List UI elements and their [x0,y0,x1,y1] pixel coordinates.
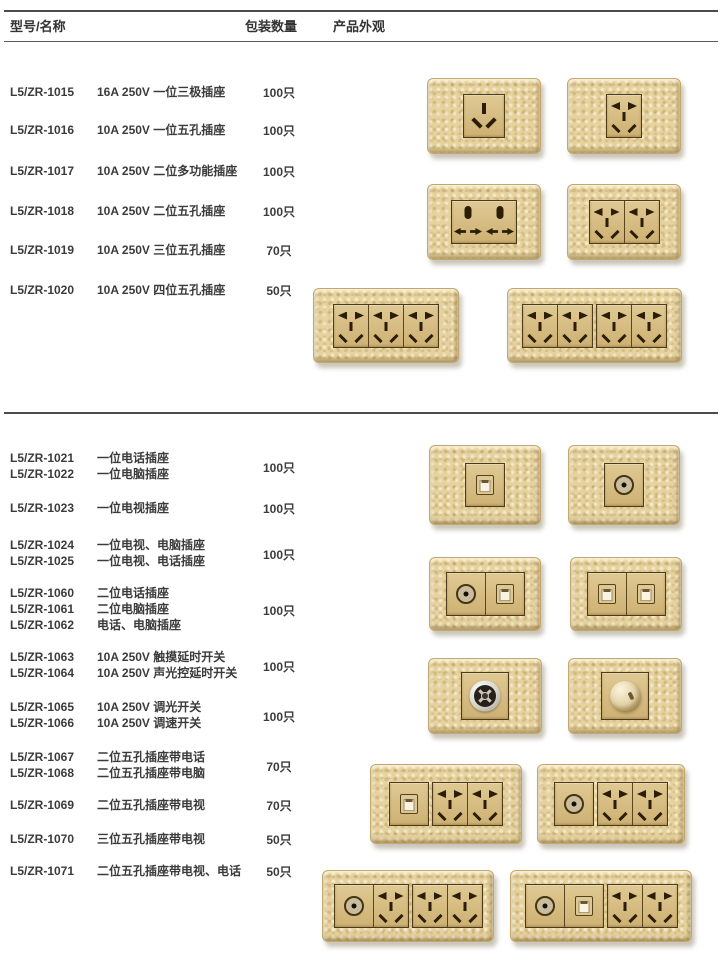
model-number: L5/ZR-1060 [10,585,95,601]
catalog-row: L5/ZR-1070三位五孔插座带电视50只 [10,831,322,848]
product-description: 一位电视插座 [97,500,272,516]
model-numbers: L5/ZR-1021L5/ZR-1022 [10,450,95,482]
socket-module-frame [412,884,483,928]
model-numbers: L5/ZR-1016 [10,122,95,138]
five-hole-socket-icon [433,783,467,825]
package-quantity: 100只 [247,649,311,683]
package-quantity: 100只 [247,537,311,571]
five-hole-socket-icon [607,95,641,137]
product-plate-1024 [429,557,541,631]
five-hole-socket-icon [413,885,447,927]
product-plate-1017 [427,184,541,260]
product-descriptions: 10A 250V 调光开关10A 250V 调速开关 [97,699,272,731]
product-plate-1023 [568,445,680,525]
model-number: L5/ZR-1071 [10,863,95,879]
model-numbers: L5/ZR-1067L5/ZR-1068 [10,749,95,781]
socket-module-frame [333,304,439,348]
model-numbers: L5/ZR-1018 [10,203,95,219]
model-number: L5/ZR-1061 [10,601,95,617]
catalog-row: L5/ZR-1067L5/ZR-1068二位五孔插座带电话二位五孔插座带电脑70… [10,749,322,783]
catalog-row: L5/ZR-1023一位电视插座100只 [10,500,322,517]
five-hole-socket-icon [608,885,642,927]
product-plate-1065 [568,658,682,734]
model-numbers: L5/ZR-1071 [10,863,95,879]
product-plate-1019 [313,288,459,363]
phone-computer-jack-icon [485,573,524,615]
model-number: L5/ZR-1025 [10,553,95,569]
five-hole-socket-icon [467,783,502,825]
product-descriptions: 10A 250V 四位五孔插座 [97,282,272,298]
model-number: L5/ZR-1016 [10,122,95,138]
phone-computer-jack-icon [626,573,665,615]
product-descriptions: 二位电话插座二位电脑插座电话、电脑插座 [97,585,272,633]
model-numbers: L5/ZR-1024L5/ZR-1025 [10,537,95,569]
model-numbers: L5/ZR-1015 [10,84,95,100]
socket-module-frame [463,94,505,138]
product-descriptions: 二位五孔插座带电话二位五孔插座带电脑 [97,749,272,781]
five-hole-socket-icon [368,305,403,347]
package-quantity: 100只 [247,122,311,139]
package-quantity: 100只 [247,163,311,180]
five-hole-socket-icon [632,783,667,825]
product-descriptions: 二位五孔插座带电视、电话 [97,863,272,879]
header-top-rule [4,10,718,12]
socket-module-frame [525,884,604,928]
model-number: L5/ZR-1065 [10,699,95,715]
socket-module-frame [607,884,678,928]
model-number: L5/ZR-1070 [10,831,95,847]
model-number: L5/ZR-1024 [10,537,95,553]
product-description: 二位五孔插座带电视、电话 [97,863,272,879]
product-plate-1016 [567,78,681,154]
product-description: 10A 250V 调光开关 [97,699,272,715]
product-description: 一位电视、电脑插座 [97,537,272,553]
product-plate-1067 [370,764,522,844]
catalog-row: L5/ZR-1063L5/ZR-106410A 250V 触摸延时开关10A 2… [10,649,322,683]
product-plate-1069 [537,764,685,844]
product-description: 10A 250V 一位五孔插座 [97,122,272,138]
model-number: L5/ZR-1020 [10,282,95,298]
model-number: L5/ZR-1018 [10,203,95,219]
model-numbers: L5/ZR-1070 [10,831,95,847]
five-hole-socket-icon [334,305,368,347]
catalog-row: L5/ZR-1060L5/ZR-1061L5/ZR-1062二位电话插座二位电脑… [10,585,322,635]
column-header-model-name: 型号/名称 [10,16,66,35]
model-number: L5/ZR-1068 [10,765,95,781]
socket-module-frame [461,672,509,720]
package-quantity: 70只 [247,797,311,814]
header-bottom-rule [4,41,718,42]
socket-module-frame [606,94,642,138]
product-description: 二位电话插座 [97,585,272,601]
product-description: 二位电脑插座 [97,601,272,617]
product-description: 10A 250V 四位五孔插座 [97,282,272,298]
catalog-row: L5/ZR-1069二位五孔插座带电视70只 [10,797,322,814]
five-hole-socket-icon [631,305,666,347]
product-descriptions: 10A 250V 二位多功能插座 [97,163,272,179]
socket-module-frame [601,672,649,720]
model-number: L5/ZR-1021 [10,450,95,466]
product-descriptions: 一位电话插座一位电脑插座 [97,450,272,482]
product-plate-1015 [427,78,541,154]
model-number: L5/ZR-1064 [10,665,95,681]
section-divider-rule [4,412,718,414]
model-number: L5/ZR-1063 [10,649,95,665]
socket-module-frame [451,200,517,244]
five-hole-socket-icon [598,783,632,825]
catalog-row: L5/ZR-101710A 250V 二位多功能插座100只 [10,163,322,180]
socket-module-frame [446,572,525,616]
package-quantity: 50只 [247,282,311,299]
product-plate-1018 [567,184,681,260]
tv-coax-socket-icon [335,885,373,927]
product-description: 电话、电脑插座 [97,617,272,633]
product-descriptions: 10A 250V 二位五孔插座 [97,203,272,219]
five-hole-socket-icon [642,885,677,927]
product-description: 一位电脑插座 [97,466,272,482]
five-hole-socket-icon [557,305,592,347]
socket-module-frame [334,884,409,928]
product-description: 二位五孔插座带电脑 [97,765,272,781]
catalog-page: 型号/名称 包装数量 产品外观 L5/ZR-101516A 250V 一位三极插… [0,0,722,967]
five-hole-socket-icon [597,305,631,347]
socket-module-frame [597,782,668,826]
product-descriptions: 10A 250V 触摸延时开关10A 250V 声光控延时开关 [97,649,272,681]
package-quantity: 50只 [247,831,311,848]
socket-module-frame [465,463,505,507]
catalog-row: L5/ZR-1065L5/ZR-106610A 250V 调光开关10A 250… [10,699,322,733]
product-plate-1060 [570,557,682,631]
column-header-quantity: 包装数量 [245,16,297,35]
model-numbers: L5/ZR-1019 [10,242,95,258]
model-number: L5/ZR-1023 [10,500,95,516]
socket-module-frame [589,200,660,244]
five-hole-socket-icon [624,201,659,243]
product-plate-1063 [428,658,542,734]
product-descriptions: 10A 250V 一位五孔插座 [97,122,272,138]
product-description: 16A 250V 一位三极插座 [97,84,272,100]
model-numbers: L5/ZR-1017 [10,163,95,179]
tv-coax-socket-icon [526,885,564,927]
catalog-row: L5/ZR-102010A 250V 四位五孔插座50只 [10,282,322,299]
tv-coax-socket-icon [555,783,593,825]
package-quantity: 100只 [247,585,311,635]
five-hole-socket-icon [447,885,482,927]
product-description: 二位五孔插座带电话 [97,749,272,765]
model-number: L5/ZR-1062 [10,617,95,633]
product-description: 10A 250V 二位多功能插座 [97,163,272,179]
product-descriptions: 一位电视插座 [97,500,272,516]
package-quantity: 70只 [247,749,311,783]
model-number: L5/ZR-1015 [10,84,95,100]
package-quantity: 100只 [247,500,311,517]
product-description: 一位电话插座 [97,450,272,466]
catalog-row: L5/ZR-101910A 250V 三位五孔插座70只 [10,242,322,259]
package-quantity: 50只 [247,863,311,880]
product-plate-1070 [322,870,494,942]
product-description: 10A 250V 二位五孔插座 [97,203,272,219]
touch-delay-switch-icon [462,673,508,719]
package-quantity: 100只 [247,699,311,733]
model-numbers: L5/ZR-1060L5/ZR-1061L5/ZR-1062 [10,585,95,633]
model-numbers: L5/ZR-1023 [10,500,95,516]
catalog-row: L5/ZR-1021L5/ZR-1022一位电话插座一位电脑插座100只 [10,450,322,484]
socket-module-frame [432,782,503,826]
socket-module-frame [389,782,429,826]
product-description: 10A 250V 调速开关 [97,715,272,731]
socket-module-frame [554,782,594,826]
package-quantity: 100只 [247,84,311,101]
product-descriptions: 三位五孔插座带电视 [97,831,272,847]
product-plate-1020 [507,288,682,363]
socket-module-frame [587,572,666,616]
model-number: L5/ZR-1069 [10,797,95,813]
product-descriptions: 二位五孔插座带电视 [97,797,272,813]
model-number: L5/ZR-1019 [10,242,95,258]
dimmer-knob-icon [602,673,648,719]
catalog-row: L5/ZR-1024L5/ZR-1025一位电视、电脑插座一位电视、电话插座10… [10,537,322,571]
package-quantity: 100只 [247,450,311,484]
product-description: 10A 250V 三位五孔插座 [97,242,272,258]
five-hole-socket-icon [523,305,557,347]
package-quantity: 70只 [247,242,311,259]
column-header-appearance: 产品外观 [333,16,385,35]
tv-coax-socket-icon [605,464,643,506]
phone-computer-jack-icon [390,783,428,825]
product-description: 10A 250V 声光控延时开关 [97,665,272,681]
product-plate-1071 [510,870,692,942]
model-numbers: L5/ZR-1020 [10,282,95,298]
five-hole-socket-icon [403,305,438,347]
model-number: L5/ZR-1017 [10,163,95,179]
tv-coax-socket-icon [447,573,485,615]
phone-computer-jack-icon [466,464,504,506]
five-hole-socket-icon [590,201,624,243]
product-description: 一位电视、电话插座 [97,553,272,569]
package-quantity: 100只 [247,203,311,220]
phone-computer-jack-icon [564,885,603,927]
multi-function-socket-icon [484,201,516,243]
multi-function-socket-icon [452,201,484,243]
five-hole-socket-icon [373,885,408,927]
socket-module-frame [522,304,593,348]
model-number: L5/ZR-1066 [10,715,95,731]
model-numbers: L5/ZR-1063L5/ZR-1064 [10,649,95,681]
catalog-row: L5/ZR-101516A 250V 一位三极插座100只 [10,84,322,101]
model-numbers: L5/ZR-1065L5/ZR-1066 [10,699,95,731]
product-descriptions: 一位电视、电脑插座一位电视、电话插座 [97,537,272,569]
model-number: L5/ZR-1022 [10,466,95,482]
product-descriptions: 10A 250V 三位五孔插座 [97,242,272,258]
phone-computer-jack-icon [588,573,626,615]
product-plate-1021 [429,445,541,525]
socket-module-frame [596,304,667,348]
three-pin-socket-icon [464,95,504,137]
product-description: 三位五孔插座带电视 [97,831,272,847]
product-descriptions: 16A 250V 一位三极插座 [97,84,272,100]
model-number: L5/ZR-1067 [10,749,95,765]
product-description: 10A 250V 触摸延时开关 [97,649,272,665]
product-description: 二位五孔插座带电视 [97,797,272,813]
model-numbers: L5/ZR-1069 [10,797,95,813]
catalog-row: L5/ZR-101810A 250V 二位五孔插座100只 [10,203,322,220]
socket-module-frame [604,463,644,507]
catalog-row: L5/ZR-1071二位五孔插座带电视、电话50只 [10,863,322,880]
catalog-row: L5/ZR-101610A 250V 一位五孔插座100只 [10,122,322,139]
